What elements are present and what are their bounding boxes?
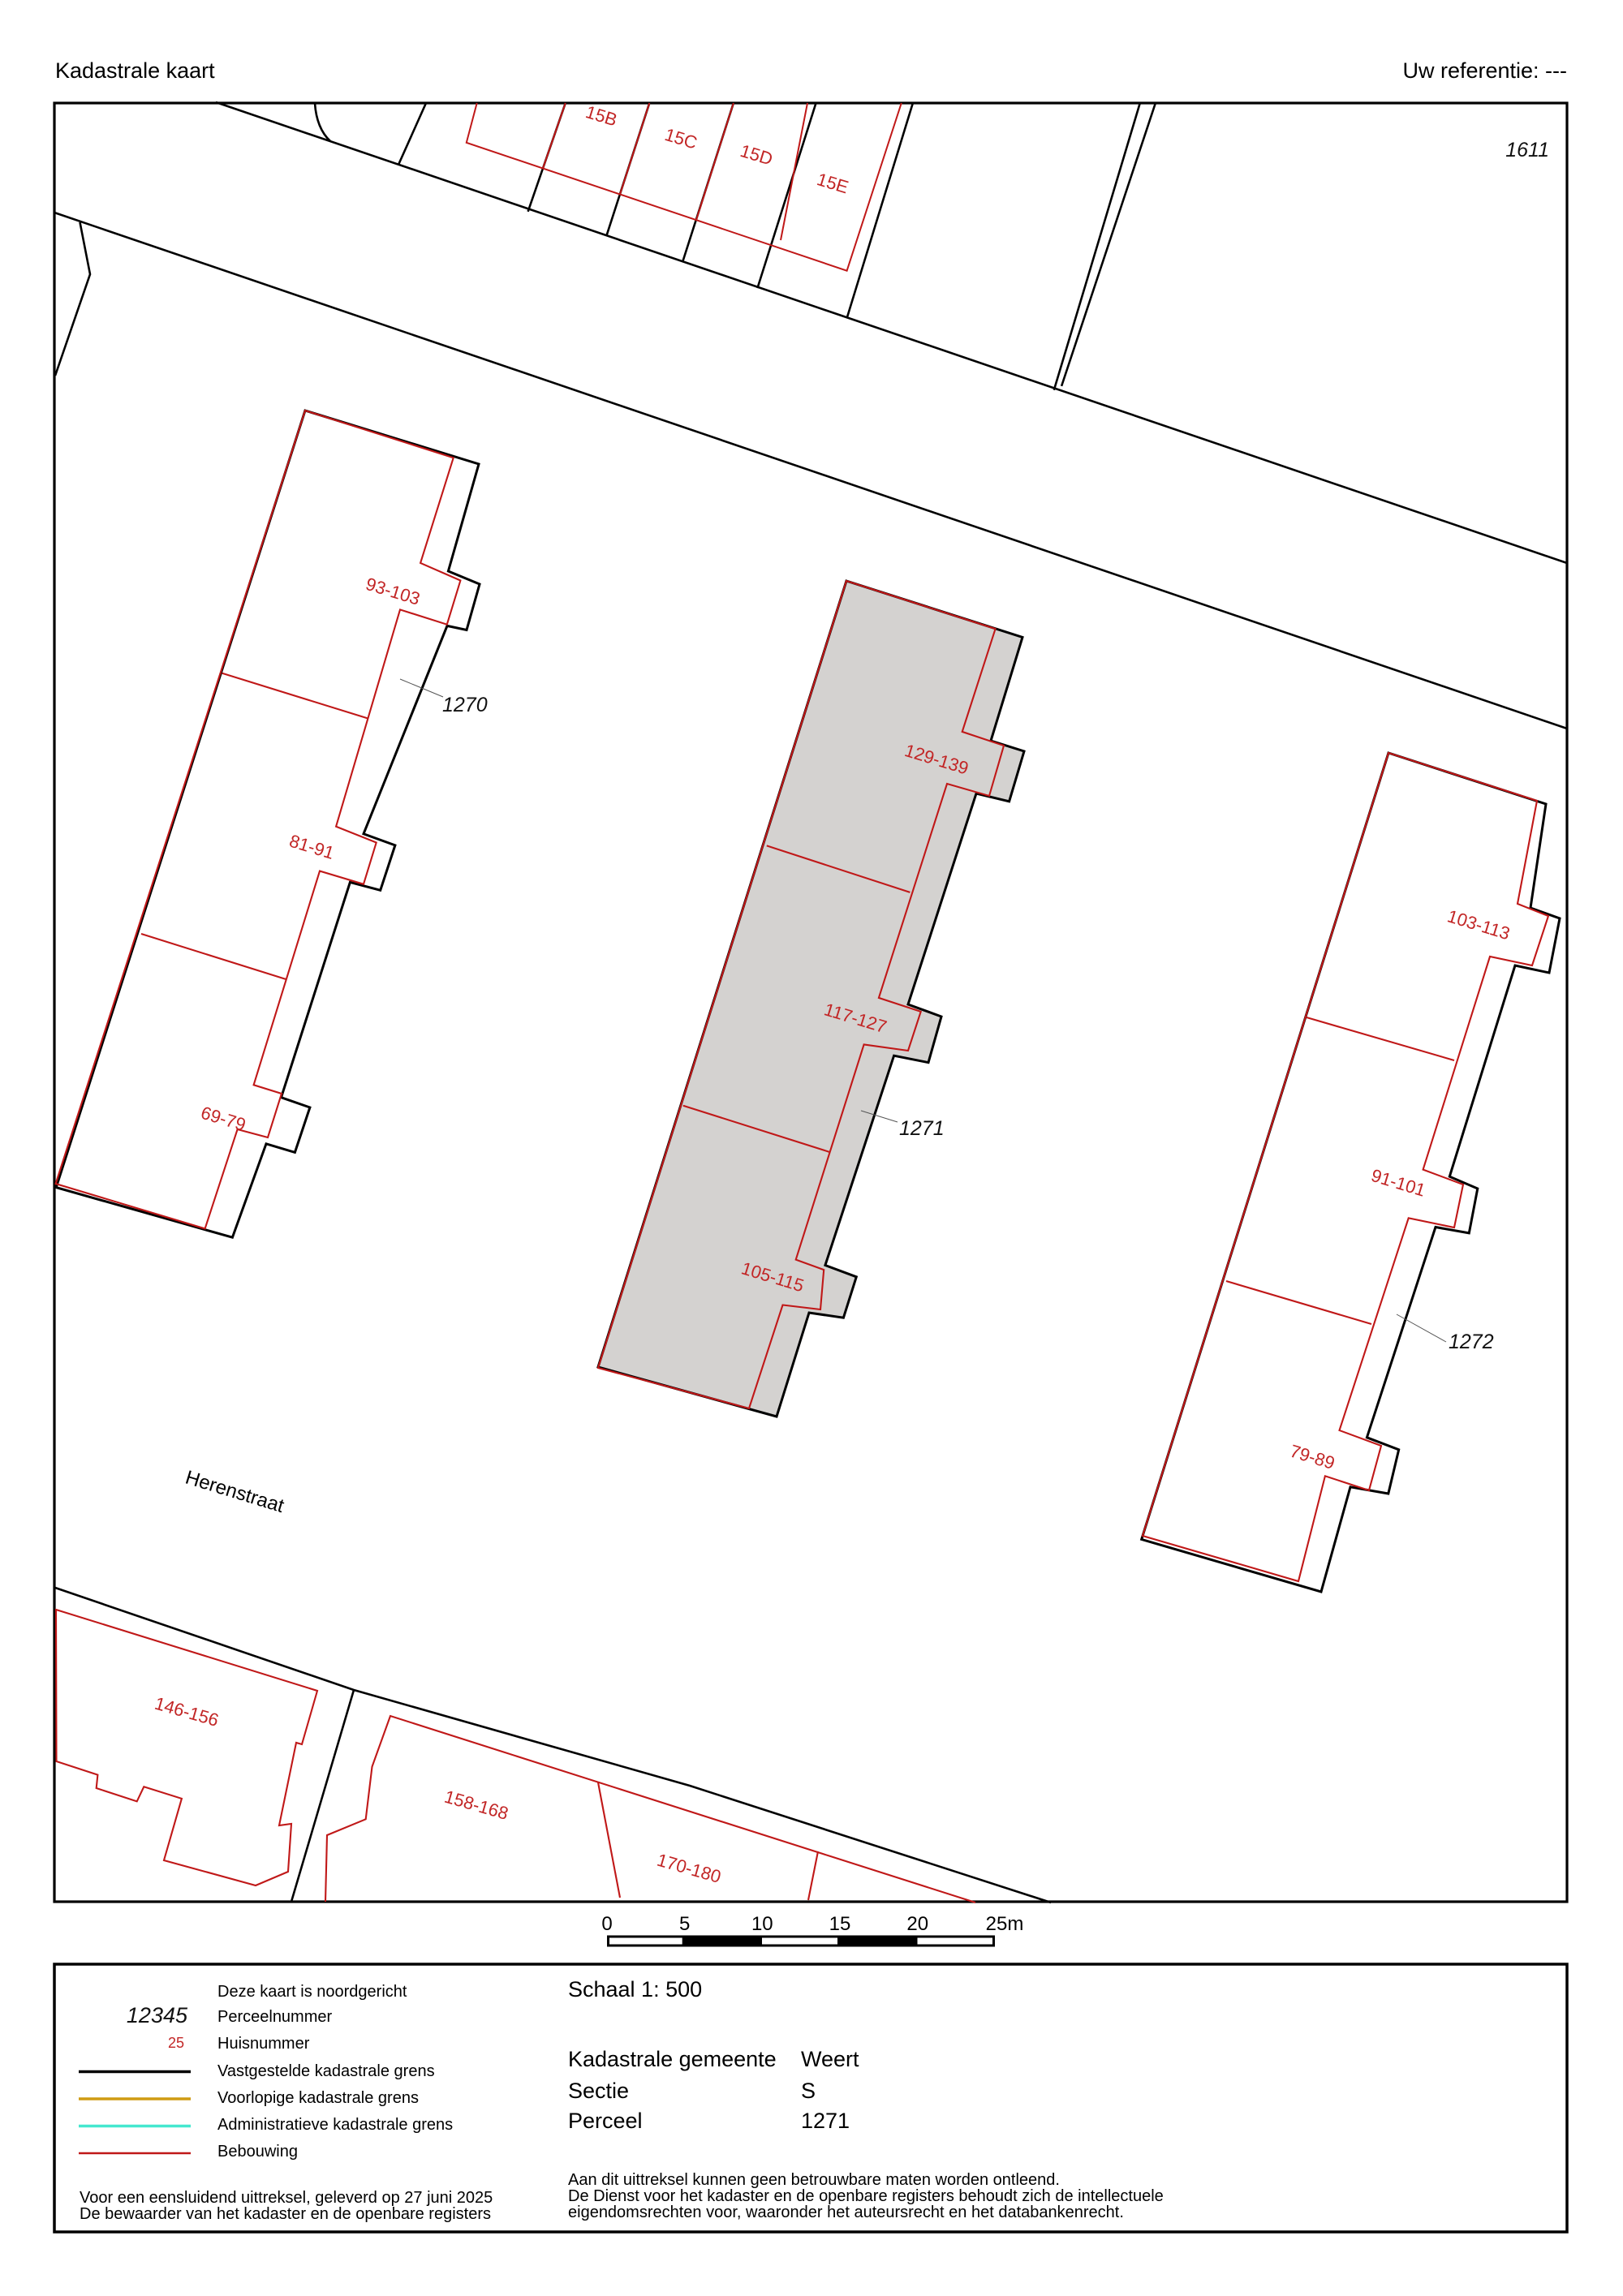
svg-text:S: S <box>801 2079 816 2103</box>
svg-text:10: 10 <box>751 1913 773 1935</box>
svg-text:Aan dit uittreksel kunnen geen: Aan dit uittreksel kunnen geen betrouwba… <box>568 2171 1060 2189</box>
svg-text:Kadastrale kaart: Kadastrale kaart <box>55 58 215 83</box>
svg-text:Deze kaart is noordgericht: Deze kaart is noordgericht <box>217 1983 407 2001</box>
svg-text:De Dienst voor het kadaster en: De Dienst voor het kadaster en de openba… <box>568 2187 1164 2205</box>
svg-text:De bewaarder van het kadaster: De bewaarder van het kadaster en de open… <box>80 2205 491 2223</box>
svg-text:Schaal 1: 500: Schaal 1: 500 <box>568 1977 702 2001</box>
svg-text:Bebouwing: Bebouwing <box>217 2143 298 2161</box>
svg-text:eigendomsrechten voor, waarond: eigendomsrechten voor, waaronder het aut… <box>568 2204 1124 2221</box>
svg-text:12345: 12345 <box>127 2003 188 2027</box>
svg-text:15: 15 <box>829 1913 851 1935</box>
svg-text:1270: 1270 <box>442 694 488 716</box>
svg-text:1271: 1271 <box>899 1117 945 1140</box>
svg-text:20: 20 <box>906 1913 928 1935</box>
svg-text:Administratieve kadastrale gre: Administratieve kadastrale grens <box>217 2116 453 2134</box>
svg-text:Vastgestelde kadastrale grens: Vastgestelde kadastrale grens <box>217 2062 435 2080</box>
svg-text:Voorlopige kadastrale grens: Voorlopige kadastrale grens <box>217 2089 419 2107</box>
svg-text:Uw referentie: ---: Uw referentie: --- <box>1402 58 1567 83</box>
svg-text:Perceelnummer: Perceelnummer <box>217 2008 333 2026</box>
svg-text:1272: 1272 <box>1449 1331 1494 1353</box>
svg-text:0: 0 <box>601 1913 612 1935</box>
svg-text:25: 25 <box>168 2035 184 2051</box>
svg-text:Sectie: Sectie <box>568 2079 629 2103</box>
svg-text:Voor een eensluidend uittrekse: Voor een eensluidend uittreksel, gelever… <box>80 2189 493 2207</box>
svg-text:1611: 1611 <box>1505 139 1549 161</box>
svg-text:Huisnummer: Huisnummer <box>217 2035 310 2053</box>
svg-text:Weert: Weert <box>801 2047 859 2071</box>
svg-text:1271: 1271 <box>801 2109 850 2133</box>
svg-text:25m: 25m <box>986 1913 1024 1935</box>
svg-text:Perceel: Perceel <box>568 2109 643 2133</box>
svg-text:Kadastrale gemeente: Kadastrale gemeente <box>568 2047 777 2071</box>
svg-text:5: 5 <box>679 1913 690 1935</box>
